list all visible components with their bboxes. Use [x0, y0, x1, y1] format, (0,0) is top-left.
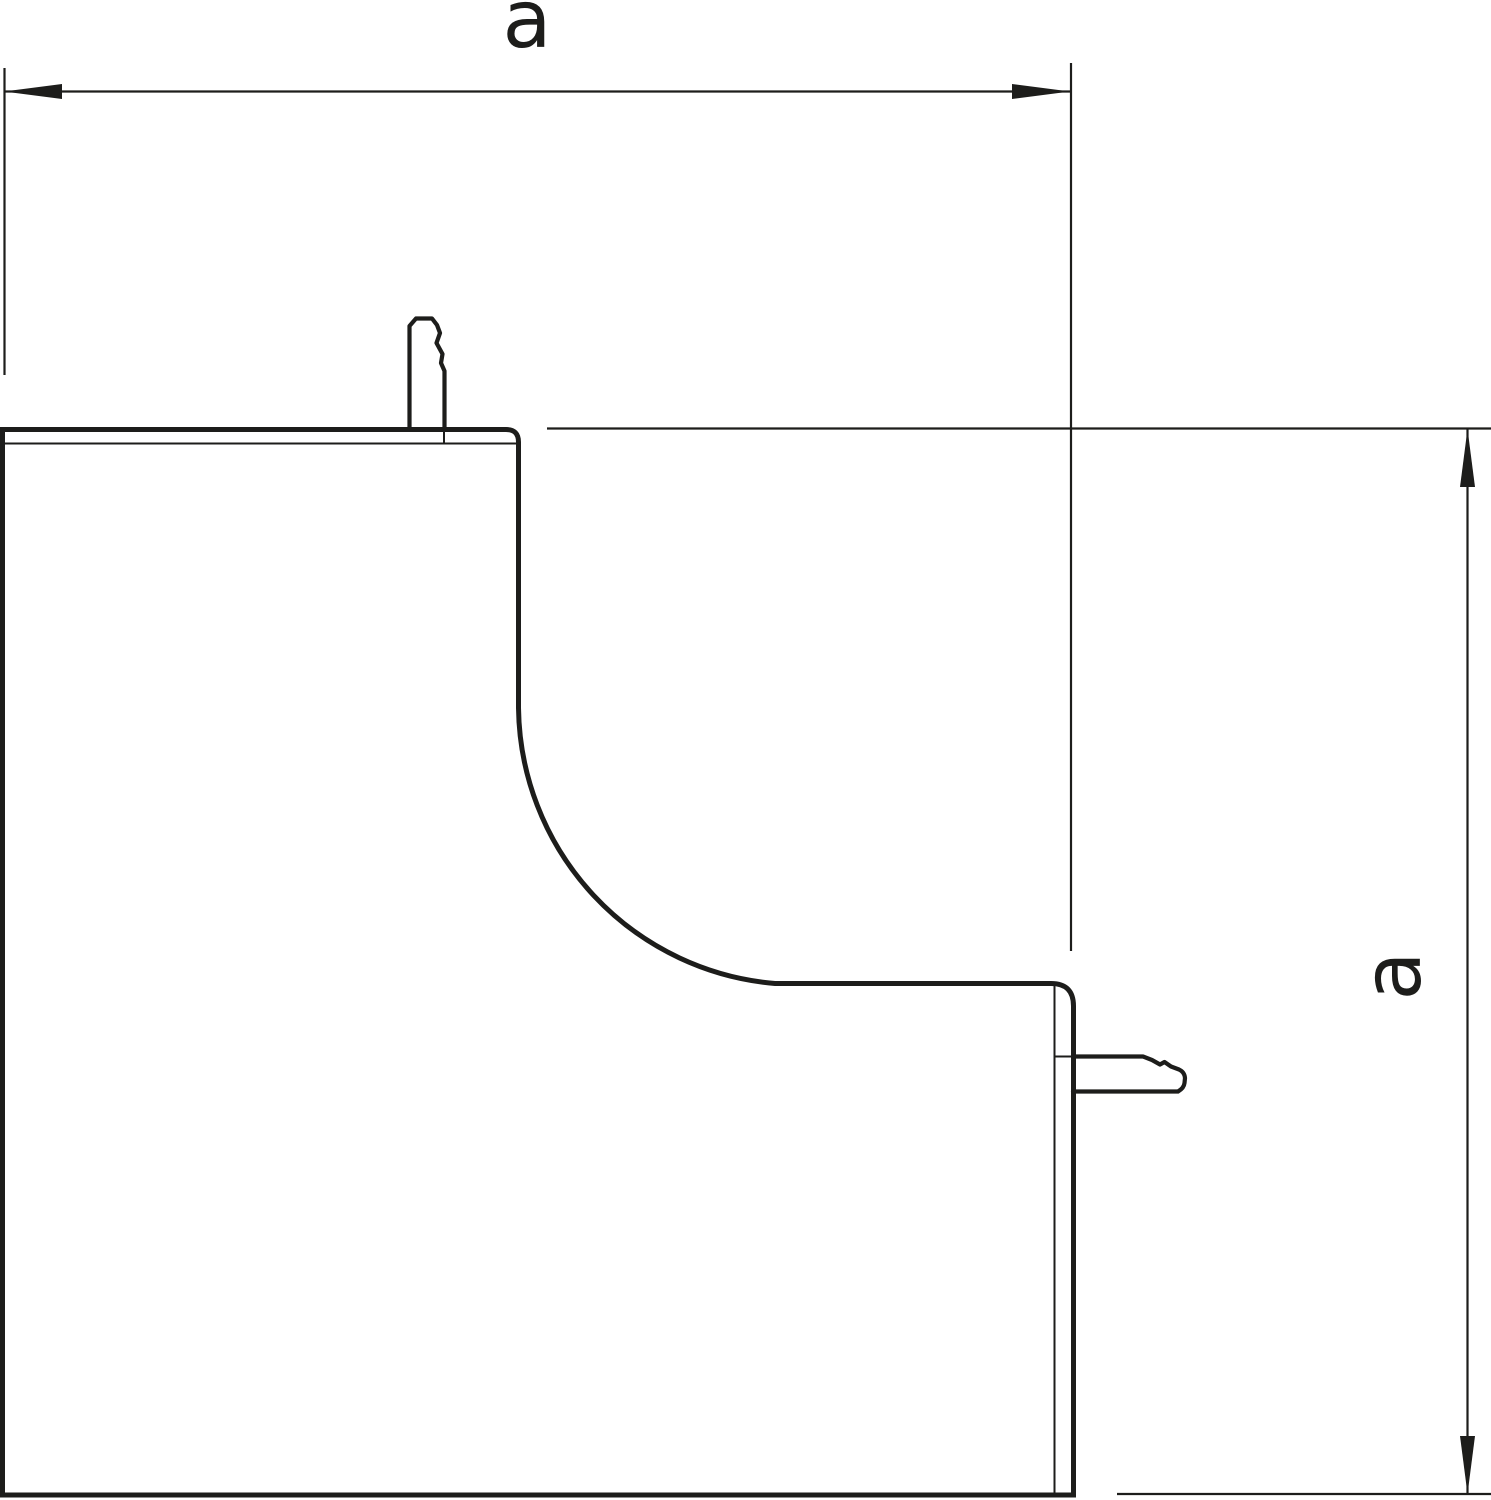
clip-tab-right-icon	[1073, 1057, 1185, 1092]
dimension-label-vertical: a	[1346, 951, 1439, 1000]
arrowhead-right-icon	[1012, 84, 1070, 99]
technical-drawing: a a	[0, 0, 1491, 1500]
part-outline	[3, 430, 1074, 1496]
arrowhead-left-icon	[4, 84, 62, 99]
arrowhead-up-icon	[1460, 429, 1475, 487]
clip-tab-top-icon	[410, 319, 445, 430]
arrowhead-down-icon	[1460, 1436, 1475, 1494]
dimension-label-horizontal: a	[502, 0, 551, 66]
drawing-canvas: a a	[0, 0, 1491, 1500]
